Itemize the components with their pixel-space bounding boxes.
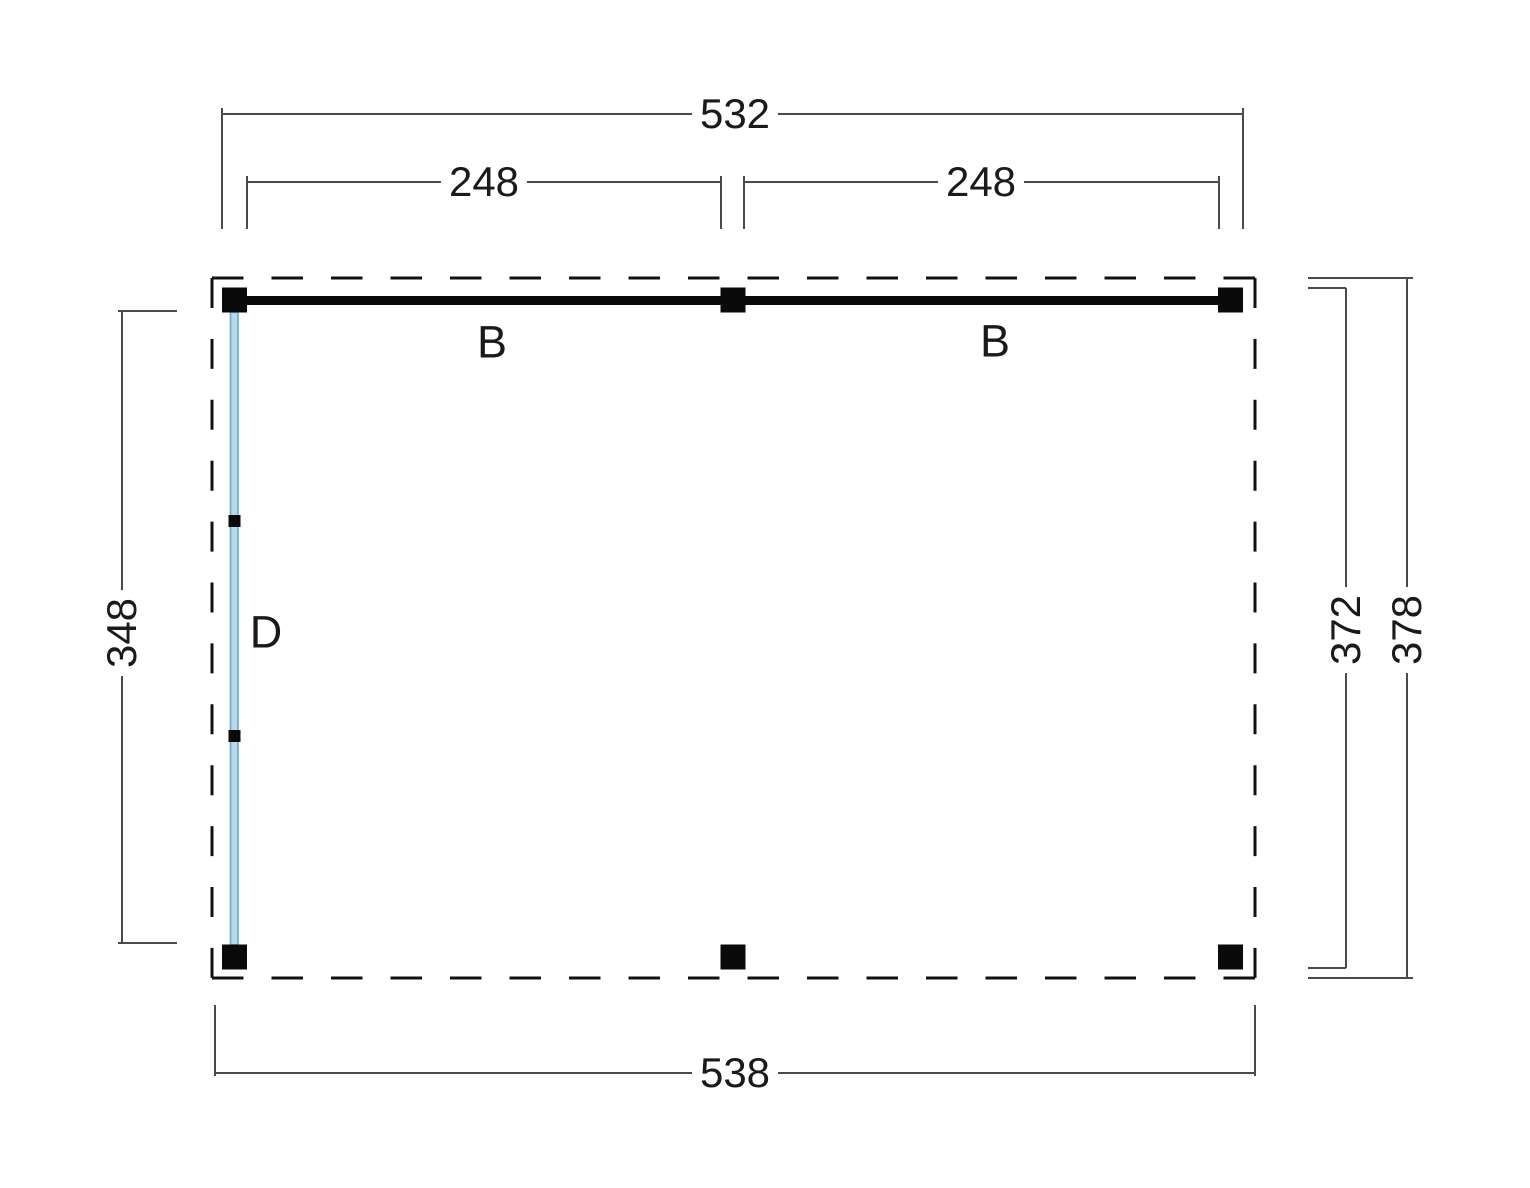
floor-plan-canvas: 532 248 248 348 372 378 538 B B D xyxy=(0,0,1530,1188)
post-bottom-right xyxy=(1218,945,1243,970)
dim-label-248-left: 248 xyxy=(441,159,527,205)
post-top-left xyxy=(222,288,247,313)
post-bottom-middle xyxy=(721,945,746,970)
part-label-beam-left: B xyxy=(477,317,507,367)
roof-outline-dashed xyxy=(212,278,1255,978)
dim-label-348: 348 xyxy=(99,590,145,676)
dim-label-538: 538 xyxy=(692,1050,778,1096)
wall-element xyxy=(231,312,239,945)
dim-label-248-right: 248 xyxy=(938,159,1024,205)
posts xyxy=(222,288,1243,970)
dim-label-378: 378 xyxy=(1384,587,1430,673)
dim-label-532: 532 xyxy=(692,91,778,137)
part-label-wall: D xyxy=(250,607,283,657)
wall-stud-upper xyxy=(229,515,241,527)
dim-label-372: 372 xyxy=(1323,587,1369,673)
post-top-middle xyxy=(721,288,746,313)
floor-plan-drawing xyxy=(0,0,1530,1188)
post-bottom-left xyxy=(222,945,247,970)
part-label-beam-right: B xyxy=(980,316,1010,366)
post-top-right xyxy=(1218,288,1243,313)
wall-stud-lower xyxy=(229,730,241,742)
